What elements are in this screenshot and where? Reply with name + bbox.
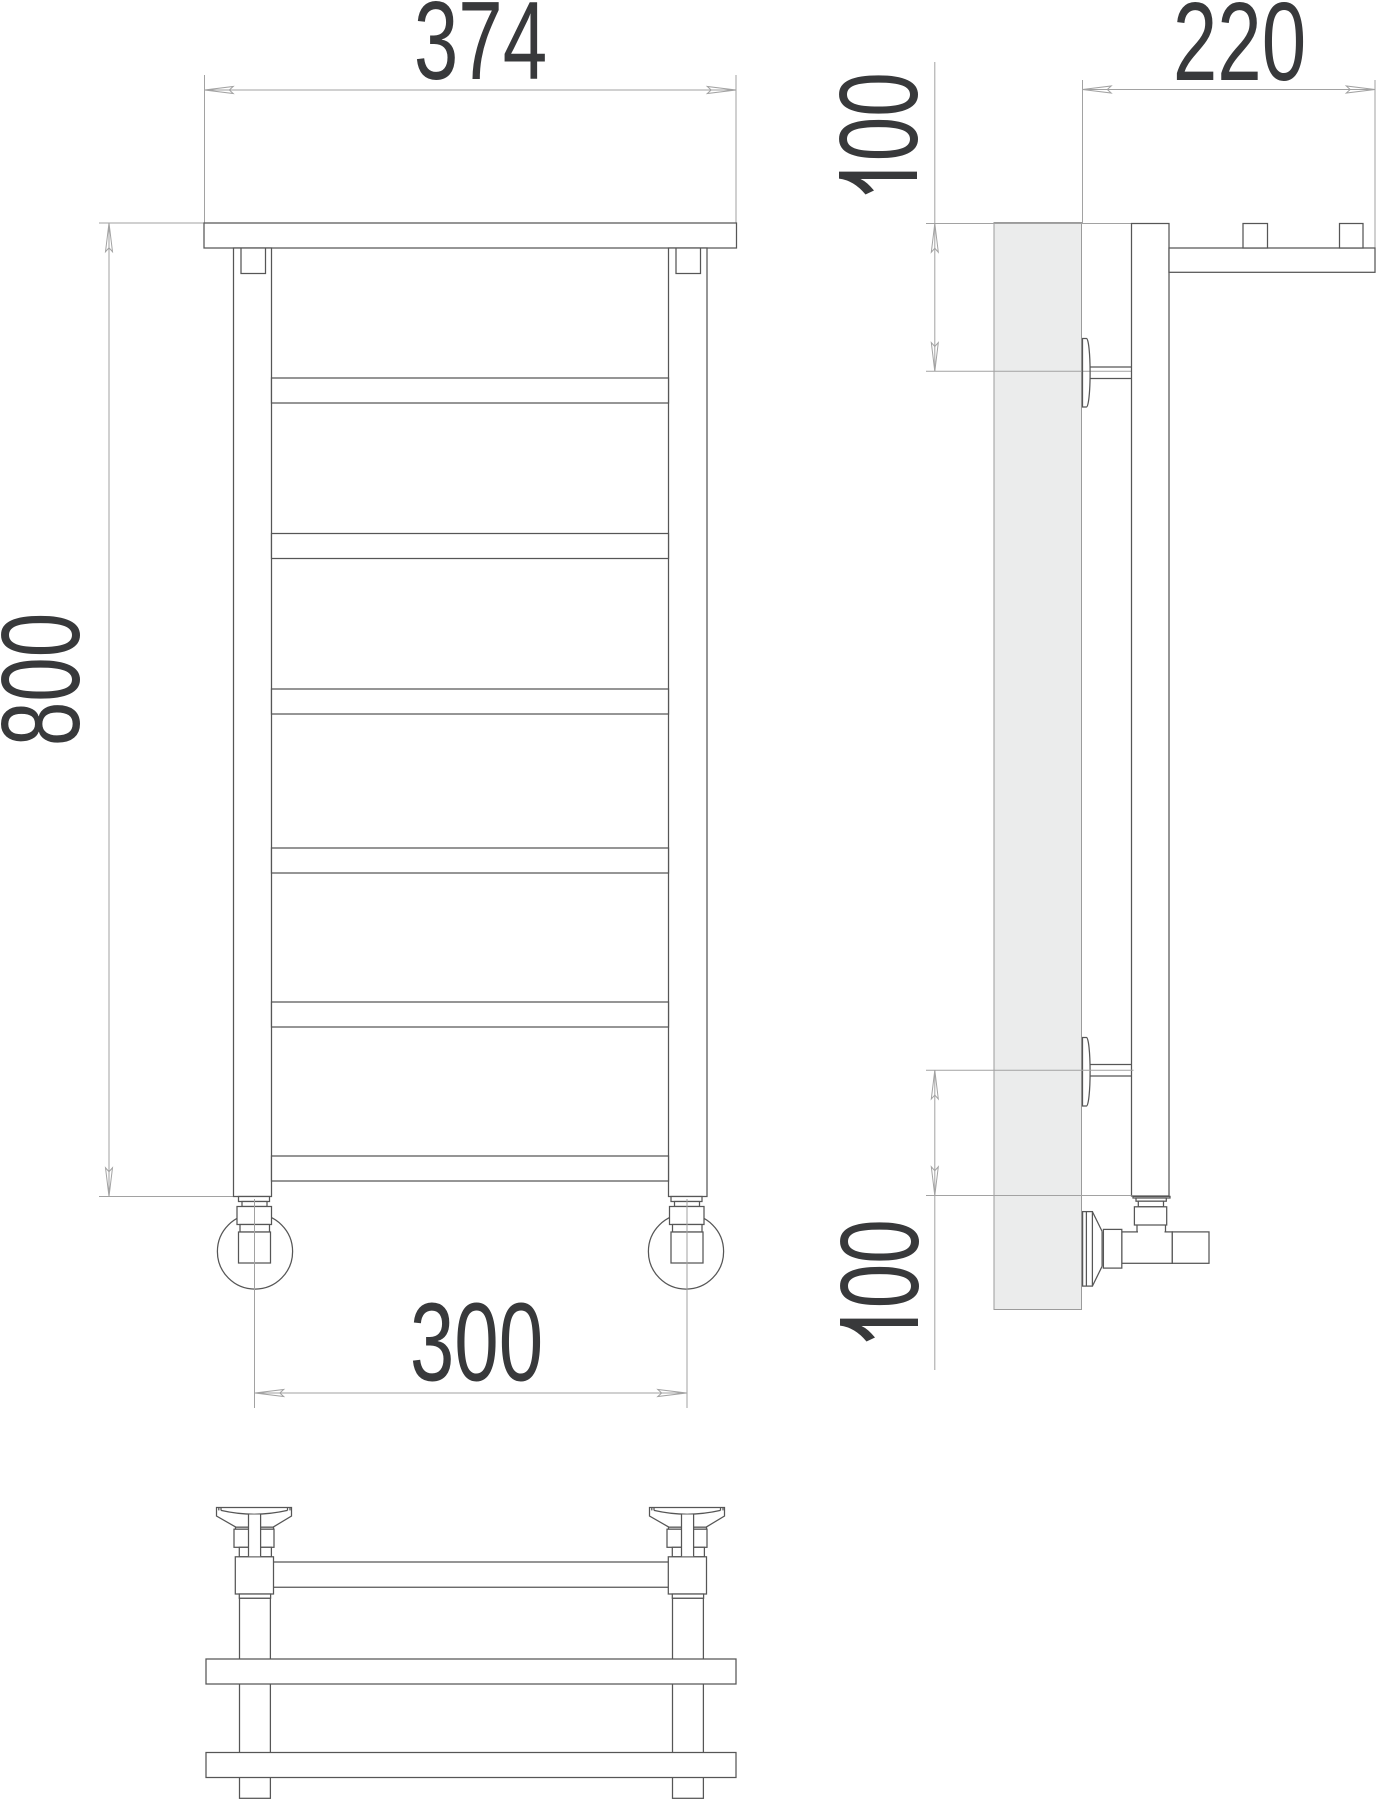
svg-text:800: 800 <box>0 613 103 746</box>
svg-text:300: 300 <box>410 1281 543 1405</box>
svg-text:0: 0 <box>817 117 941 161</box>
svg-text:0: 0 <box>818 1264 942 1308</box>
svg-text:0: 0 <box>817 72 941 116</box>
svg-text:374: 374 <box>414 0 547 103</box>
svg-text:220: 220 <box>1173 0 1306 104</box>
svg-text:0: 0 <box>818 1219 942 1263</box>
